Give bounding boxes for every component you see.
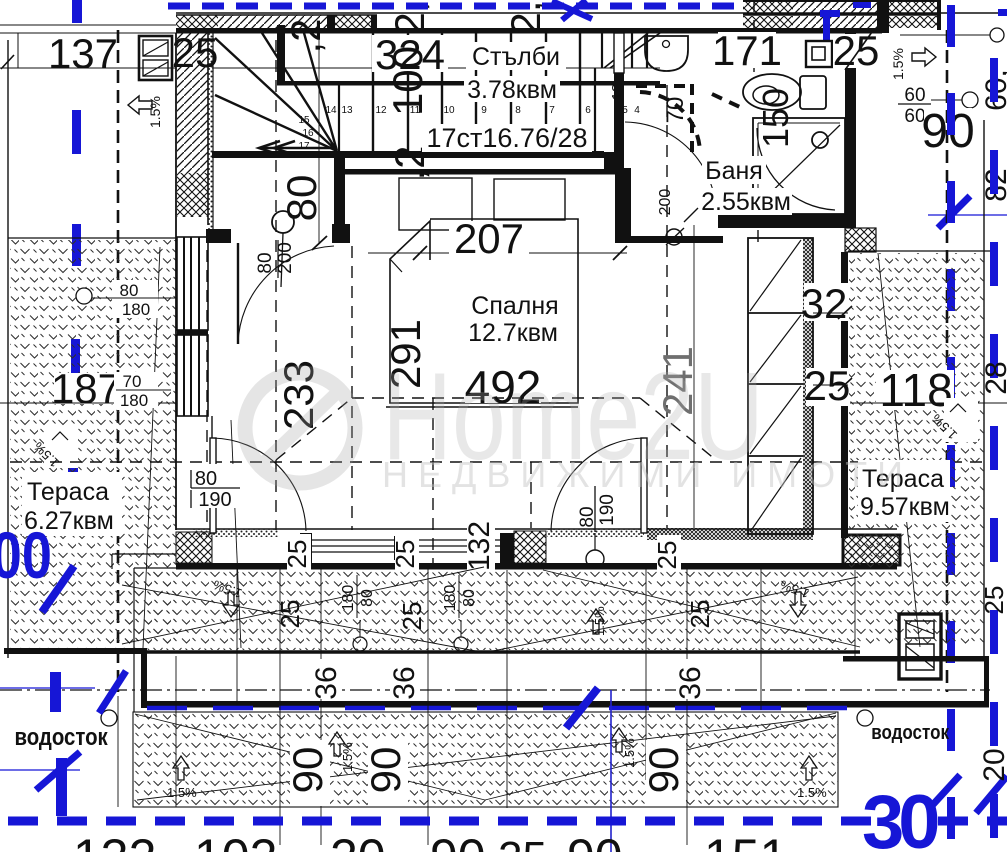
svg-text:,2: ,2 (282, 18, 329, 53)
svg-text:1.5%: 1.5% (147, 96, 163, 128)
svg-text:15: 15 (298, 115, 310, 126)
svg-text:180: 180 (120, 391, 148, 410)
svg-text:207: 207 (454, 215, 524, 262)
svg-text:180: 180 (340, 585, 357, 612)
svg-text:90: 90 (284, 747, 331, 794)
svg-text:водосток: водосток (14, 723, 108, 750)
svg-text:32: 32 (801, 280, 848, 327)
svg-text:6: 6 (585, 105, 591, 116)
svg-text:1.5%: 1.5% (340, 742, 355, 772)
svg-text:17: 17 (298, 141, 310, 152)
svg-text:25: 25 (282, 540, 312, 569)
svg-text:200: 200 (275, 242, 296, 274)
svg-text:1.5%: 1.5% (797, 785, 827, 800)
svg-text:8: 8 (515, 105, 521, 116)
svg-text:200: 200 (657, 189, 674, 216)
svg-text:28: 28 (980, 361, 1007, 394)
svg-text:20: 20 (978, 748, 1007, 781)
svg-text:36: 36 (674, 666, 707, 699)
svg-text:25: 25 (833, 27, 880, 74)
svg-text:137: 137 (48, 30, 118, 77)
svg-text:1.5%: 1.5% (167, 785, 197, 800)
svg-text:20: 20 (330, 829, 386, 852)
svg-text:1.5%: 1.5% (890, 48, 906, 80)
svg-text:9: 9 (481, 105, 487, 116)
svg-text:171: 171 (712, 27, 782, 74)
svg-text:25: 25 (390, 540, 420, 569)
svg-text:80: 80 (195, 468, 217, 490)
svg-text:36: 36 (310, 666, 343, 699)
svg-text:25: 25 (652, 541, 682, 570)
svg-text:25: 25 (397, 602, 427, 631)
svg-text:187: 187 (51, 365, 121, 412)
svg-text:водосток: водосток (871, 721, 949, 744)
svg-text:190: 190 (198, 489, 231, 511)
svg-text:НЕДВИЖИМИ ИМОТИ: НЕДВИЖИМИ ИМОТИ (382, 454, 913, 495)
svg-text:4: 4 (634, 105, 640, 116)
svg-text:132: 132 (73, 829, 156, 852)
svg-text:132: 132 (463, 521, 496, 571)
svg-text:30: 30 (862, 780, 938, 852)
svg-text:25: 25 (498, 833, 547, 852)
svg-text:100: 100 (384, 46, 431, 116)
svg-text:25: 25 (979, 586, 1007, 615)
svg-text:12: 12 (609, 84, 626, 101)
svg-text:118: 118 (879, 364, 952, 416)
svg-text:25: 25 (685, 600, 715, 629)
svg-text:00: 00 (0, 518, 52, 592)
svg-text:12.7квм: 12.7квм (468, 319, 558, 347)
svg-text:80: 80 (461, 589, 478, 607)
svg-text:80: 80 (255, 252, 276, 273)
svg-text:2.55квм: 2.55квм (701, 188, 791, 216)
svg-text:180: 180 (442, 585, 459, 612)
svg-text:60: 60 (904, 85, 925, 106)
svg-text:7: 7 (549, 105, 555, 116)
svg-text:10: 10 (443, 105, 455, 116)
svg-text:25: 25 (172, 29, 219, 76)
svg-text:Стълби: Стълби (472, 43, 560, 71)
svg-text:Баня: Баня (705, 157, 763, 185)
svg-text:9.57квм: 9.57квм (860, 493, 950, 521)
svg-text:90: 90 (362, 747, 409, 794)
svg-text:90: 90 (567, 829, 623, 852)
svg-text:80: 80 (278, 175, 325, 222)
svg-text:180: 180 (122, 300, 150, 319)
svg-text:1.5%: 1.5% (622, 738, 637, 768)
svg-text:151: 151 (704, 829, 787, 852)
svg-text:80: 80 (120, 281, 139, 300)
svg-text:Тераса: Тераса (27, 478, 109, 506)
svg-text:13: 13 (341, 105, 353, 116)
svg-text:36: 36 (388, 666, 421, 699)
svg-text:70: 70 (662, 97, 689, 124)
svg-text:14: 14 (325, 105, 337, 116)
svg-text:Спалня: Спалня (471, 292, 558, 320)
svg-text:190: 190 (597, 494, 618, 526)
svg-text:150: 150 (755, 88, 796, 148)
svg-text:70: 70 (123, 372, 142, 391)
svg-text:1.5%: 1.5% (592, 606, 607, 636)
svg-text:17ст16.76/28: 17ст16.76/28 (427, 123, 588, 153)
svg-text:25: 25 (275, 600, 305, 629)
svg-text:90: 90 (430, 829, 486, 852)
svg-text:16: 16 (302, 128, 314, 139)
svg-text:80: 80 (359, 589, 376, 607)
svg-text:3.78квм: 3.78квм (467, 76, 557, 104)
svg-text:102: 102 (194, 829, 277, 852)
svg-text:90: 90 (640, 747, 687, 794)
